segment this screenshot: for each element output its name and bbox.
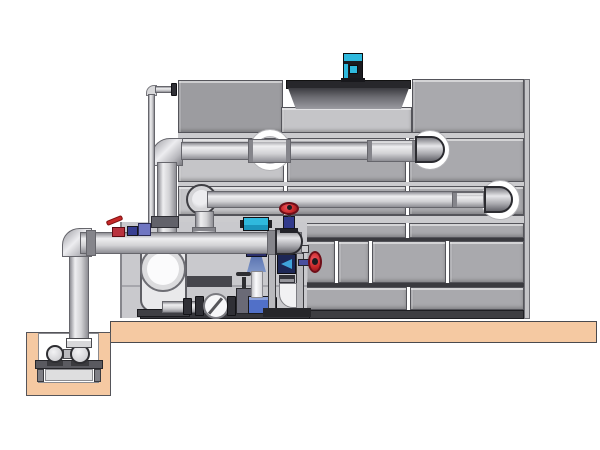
main-pipe-collar-left	[86, 230, 96, 256]
skid-flange-1	[183, 298, 192, 315]
lower-pipe-sleeve	[452, 192, 488, 208]
tower-right-edge	[524, 79, 530, 319]
tower-panel-top-right	[412, 79, 524, 133]
gate-valve-handle	[236, 272, 251, 276]
tower-panel-d-right	[409, 223, 524, 238]
frame-base	[263, 308, 311, 317]
dosing-fitting-2	[138, 223, 151, 236]
tower-panel-e4	[372, 241, 446, 283]
frame-column-left	[268, 253, 276, 311]
chem-line-flange	[171, 83, 177, 96]
lower-pipe-inlet-elbow	[484, 186, 513, 213]
fan-motor-base	[341, 78, 365, 82]
lower-pipe-run	[207, 191, 487, 208]
sump-leg-right	[94, 369, 101, 382]
upper-pipe-inlet-elbow	[415, 136, 445, 163]
upper-pipe-coupling	[248, 139, 291, 163]
diagram-stage	[0, 0, 600, 450]
isolation-valve-body	[283, 216, 295, 229]
basin-shadow-band	[184, 276, 232, 287]
upper-pipe-sleeve	[367, 140, 417, 162]
tower-panel-e5	[449, 241, 524, 283]
fan-motor-cap	[344, 54, 362, 61]
fan-cowl-bowl	[288, 88, 409, 109]
tower-panel-e3	[338, 241, 369, 283]
skid-flange-3	[227, 296, 236, 316]
sump-riser-flange	[66, 338, 92, 348]
sump-leg-left	[37, 369, 44, 382]
venturi-drop-pipe	[251, 271, 263, 298]
sump-riser-pipe	[69, 252, 89, 348]
chem-line-stub	[155, 86, 172, 93]
sump-platform	[35, 360, 103, 369]
fan-deck	[281, 107, 412, 133]
lever-valve-body	[112, 227, 125, 237]
isolation-valve-hub	[287, 205, 292, 210]
tower-panel-top-left	[178, 80, 283, 133]
sensor-clamp	[243, 217, 269, 231]
side-valve-hub	[312, 258, 318, 265]
feeder-junction-box	[279, 275, 295, 283]
sump-recess	[45, 369, 93, 381]
gate-valve-stem	[242, 277, 246, 289]
fan-motor-stripe	[344, 64, 348, 78]
riser-base-collar	[151, 216, 179, 228]
concrete-slab	[110, 321, 597, 343]
sump-pump-motor	[46, 345, 64, 363]
fan-motor-window	[349, 65, 358, 74]
chem-line-riser	[148, 94, 155, 224]
dosing-fitting-1	[127, 226, 138, 236]
tower-panel-f-right	[410, 287, 524, 310]
